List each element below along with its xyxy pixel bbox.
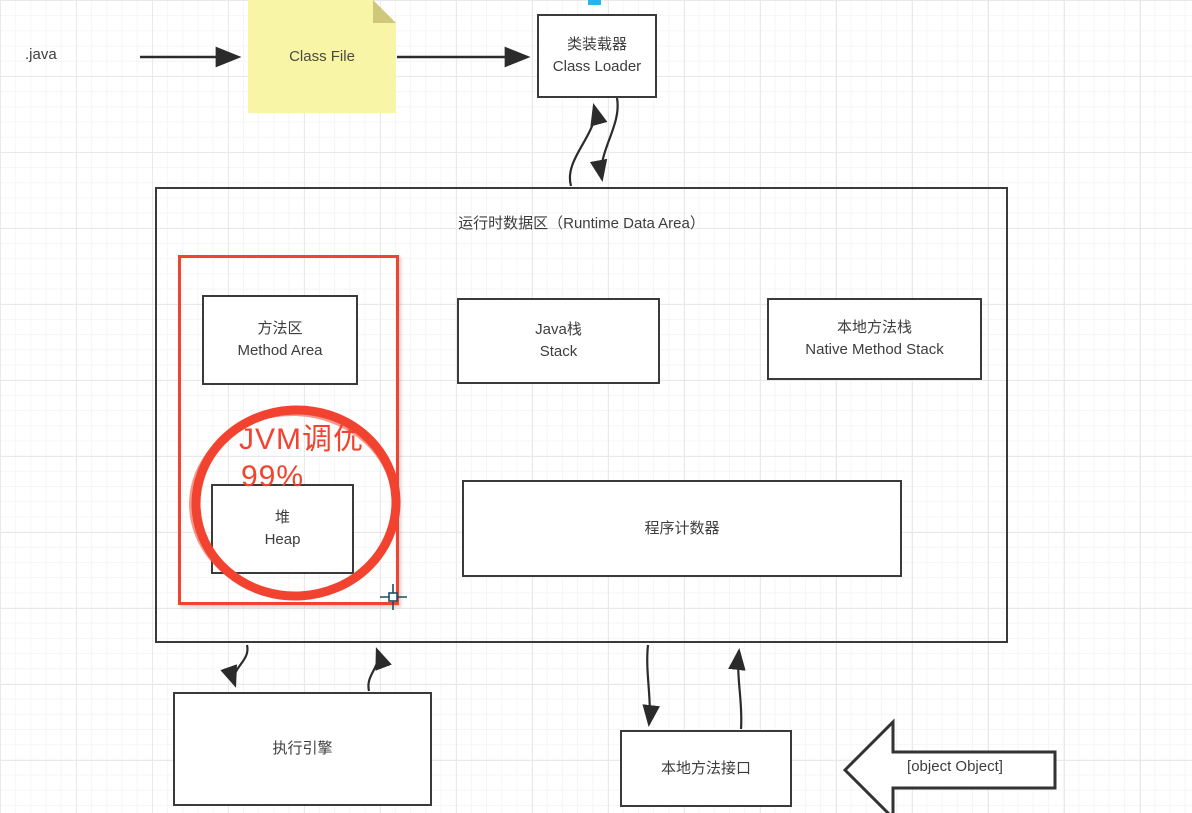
java-stack-label-en: Stack [540,341,578,363]
runtime-data-area-title: 运行时数据区（Runtime Data Area） [157,213,1006,235]
arrow-classloader-to-rda[interactable] [601,98,617,179]
java-stack-label-zh: Java栈 [535,319,582,341]
selection-handle [588,0,601,5]
execution-engine-label: 执行引擎 [272,738,332,760]
program-counter-box[interactable]: 程序计数器 [462,480,902,577]
arrow-rda-to-native-interface[interactable] [647,645,650,724]
class-loader-box[interactable]: 类装载器 Class Loader [537,14,657,98]
native-method-stack-box[interactable]: 本地方法栈 Native Method Stack [767,298,982,380]
execution-engine-box[interactable]: 执行引擎 [173,692,432,806]
annotation-percentage: 99% [241,460,304,494]
native-method-library-label: [object Object] [895,758,1015,775]
arrow-rda-to-classloader[interactable] [570,106,595,186]
native-method-interface-box[interactable]: 本地方法接口 [620,730,792,807]
arrow-rda-to-execution-engine[interactable] [234,645,248,685]
class-loader-label-zh: 类装载器 [567,34,627,56]
arrow-native-interface-to-rda[interactable] [738,651,741,729]
class-file-note-label: Class File [289,48,355,65]
native-method-stack-label-zh: 本地方法栈 [837,317,912,339]
annotation-jvm-tuning: JVM调优 [239,423,364,457]
java-stack-box[interactable]: Java栈 Stack [457,298,660,384]
program-counter-label: 程序计数器 [644,518,719,540]
java-file-label: .java [25,46,57,63]
native-method-interface-label: 本地方法接口 [661,758,751,780]
class-loader-label-en: Class Loader [553,56,641,78]
arrow-execution-engine-to-rda[interactable] [368,650,378,691]
native-method-stack-label-en: Native Method Stack [805,339,943,361]
